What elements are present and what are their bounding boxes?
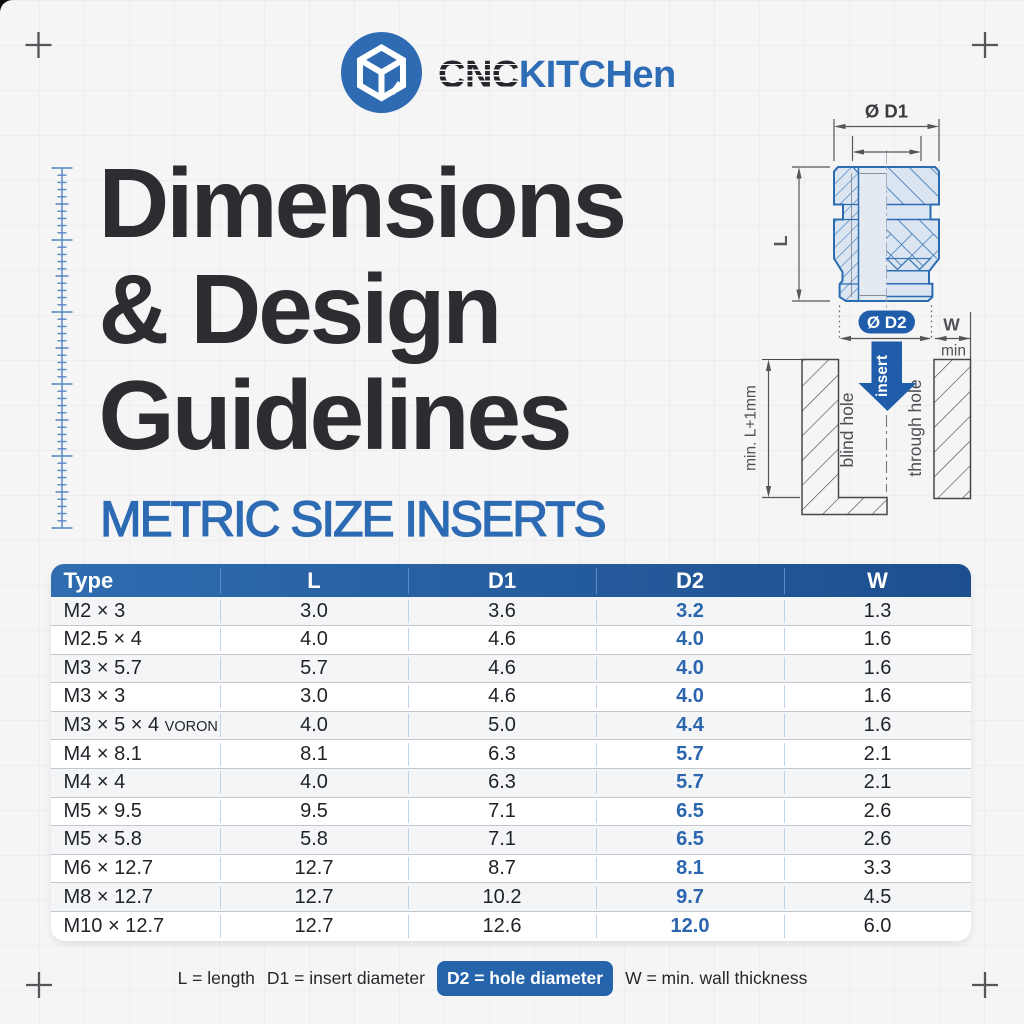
svg-text:W: W [943, 315, 960, 335]
svg-text:L: L [771, 236, 791, 247]
svg-text:insert: insert [874, 355, 891, 397]
svg-text:blind hole: blind hole [837, 393, 857, 468]
svg-text:through hole: through hole [905, 379, 925, 476]
svg-text:min: min [941, 343, 966, 360]
svg-text:Ø D2: Ø D2 [867, 313, 907, 332]
svg-text:min. L+1mm: min. L+1mm [743, 385, 760, 471]
svg-text:Ø D1: Ø D1 [865, 101, 908, 122]
